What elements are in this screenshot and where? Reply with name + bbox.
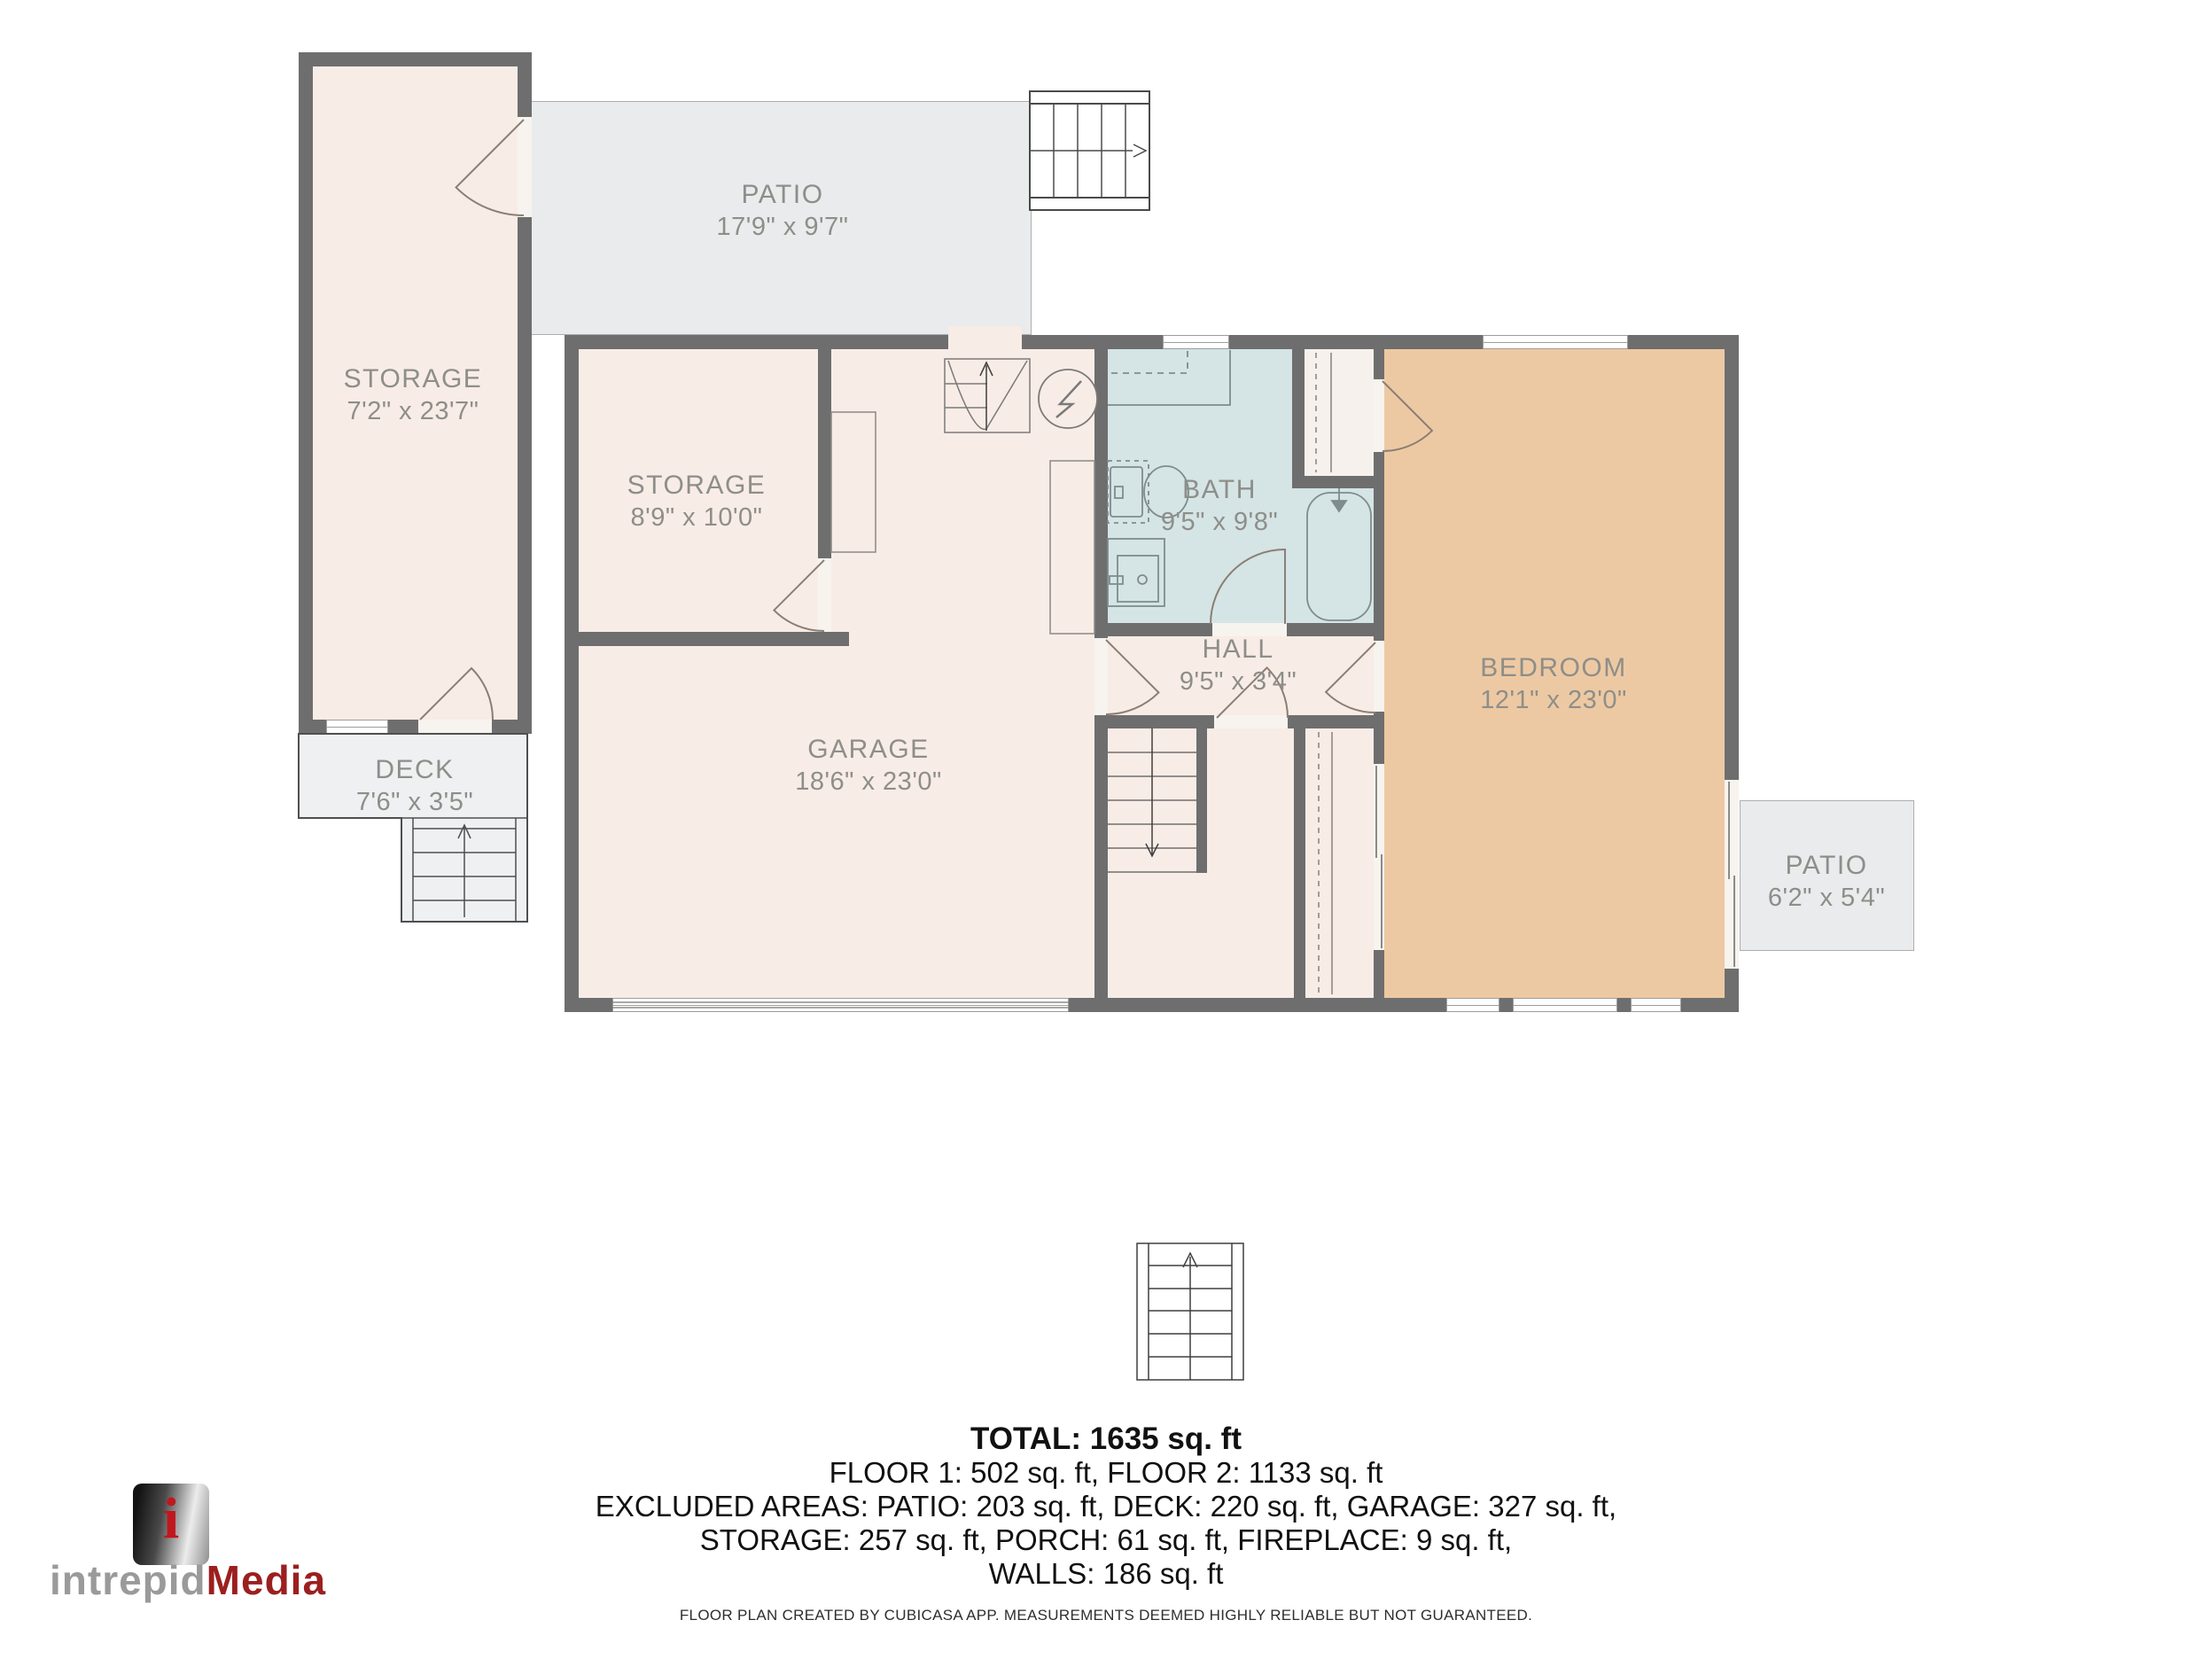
room-label-storage-inner: STORAGE 8'9" x 10'0" [627,469,767,534]
room-name: HALL [1180,633,1297,666]
room-dims: 7'2" x 23'7" [344,395,483,428]
room-name: BATH [1161,473,1278,506]
door-swing-arc [1211,549,1285,624]
room-label-patio-top: PATIO 17'9" x 9'7" [717,178,849,244]
room-dims: 7'6" x 3'5" [356,786,473,819]
intrepid-media-logo-icon: i [133,1484,209,1565]
sink-icon [1108,539,1164,606]
door-swing-arc [1382,381,1432,451]
excluded-areas-text-1: EXCLUDED AREAS: PATIO: 203 sq. ft, DECK:… [0,1490,2212,1523]
excluded-areas-text-2: STORAGE: 257 sq. ft, PORCH: 61 sq. ft, F… [0,1523,2212,1557]
disclaimer-text: FLOOR PLAN CREATED BY CUBICASA APP. MEAS… [0,1607,2212,1624]
room-name: GARAGE [795,733,942,766]
walls-area-text: WALLS: 186 sq. ft [0,1557,2212,1591]
room-label-garage: GARAGE 18'6" x 23'0" [795,733,942,798]
brand-gray-text: intrepid [50,1557,206,1603]
porch-stairs [1030,91,1149,210]
door-swing-arc [1326,643,1375,713]
closet-lines [1316,353,1332,994]
room-label-deck: DECK 7'6" x 3'5" [356,753,473,819]
room-dims: 9'5" x 3'4" [1180,666,1297,698]
room-dims: 6'2" x 5'4" [1768,882,1885,915]
fireplace-icon [1039,370,1097,428]
plan-symbols-layer [0,0,2212,1659]
lower-stairs-symbol [1137,1243,1243,1380]
bathtub-icon [1307,488,1371,620]
shower-head-icon [1332,501,1346,511]
room-name: STORAGE [344,362,483,395]
room-label-storage-tall: STORAGE 7'2" x 23'7" [344,362,483,428]
intrepid-media-wordmark: intrepidMedia [50,1556,326,1604]
door-swings [420,120,1432,720]
room-label-bath: BATH 9'5" x 9'8" [1161,473,1278,539]
room-name: DECK [356,753,473,786]
cabinet [831,412,1094,634]
room-label-patio-right: PATIO 6'2" x 5'4" [1768,849,1885,915]
door-swing-arc [1106,640,1158,714]
room-name: PATIO [1768,849,1885,882]
bath-counter [1108,350,1230,405]
room-name: STORAGE [627,469,767,502]
logo-letter: i [163,1485,179,1553]
room-dims: 9'5" x 9'8" [1161,506,1278,539]
door-swing-arc [456,120,524,215]
room-name: BEDROOM [1480,651,1627,684]
room-label-hall: HALL 9'5" x 3'4" [1180,633,1297,698]
door-swing-arc [420,668,493,720]
sliding-door-lines [1376,766,1734,967]
door-swing-arc [774,560,824,631]
room-dims: 18'6" x 23'0" [795,766,942,798]
room-dims: 17'9" x 9'7" [717,211,849,244]
room-name: PATIO [717,178,849,211]
interior-stairs-down [1108,728,1196,872]
winder-stairs-symbol [945,359,1030,432]
floor-areas-text: FLOOR 1: 502 sq. ft, FLOOR 2: 1133 sq. f… [0,1456,2212,1490]
room-dims: 8'9" x 10'0" [627,502,767,534]
garage-door-lines [612,1002,1069,1008]
total-area-text: TOTAL: 1635 sq. ft [0,1421,2212,1457]
room-label-bedroom: BEDROOM 12'1" x 23'0" [1480,651,1627,717]
brand-red-text: Media [206,1557,326,1603]
room-dims: 12'1" x 23'0" [1480,684,1627,717]
floor-plan-canvas: STORAGE 7'2" x 23'7" PATIO 17'9" x 9'7" … [0,0,2212,1659]
